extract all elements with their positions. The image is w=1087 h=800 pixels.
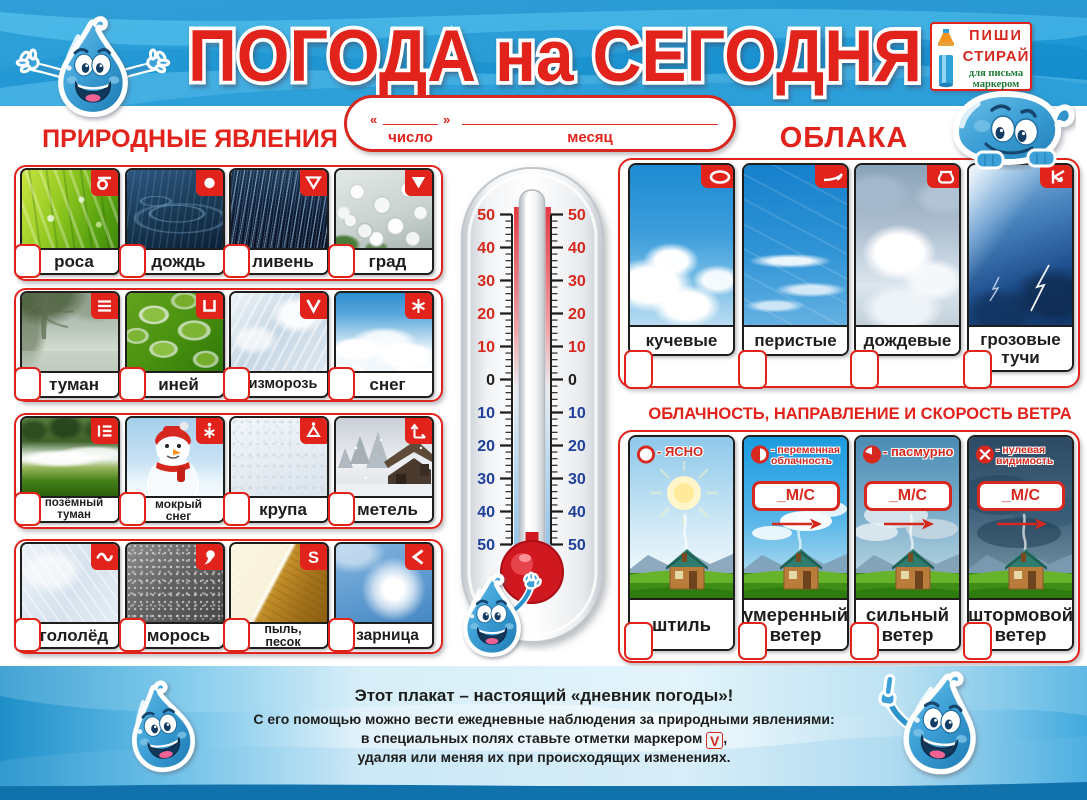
svg-text:40: 40	[568, 240, 586, 257]
svg-text:30: 30	[568, 471, 586, 488]
svg-text:10: 10	[568, 339, 586, 356]
svg-text:10: 10	[568, 405, 586, 422]
svg-text:40: 40	[477, 240, 495, 257]
svg-text:0: 0	[568, 372, 577, 389]
svg-text:S: S	[308, 549, 319, 567]
svg-text:20: 20	[568, 306, 586, 323]
svg-text:40: 40	[477, 504, 495, 521]
svg-text:20: 20	[568, 438, 586, 455]
svg-text:50: 50	[568, 537, 586, 554]
svg-text:30: 30	[477, 471, 495, 488]
svg-text:20: 20	[477, 438, 495, 455]
svg-text:30: 30	[568, 273, 586, 290]
svg-text:30: 30	[477, 273, 495, 290]
svg-text:10: 10	[477, 405, 495, 422]
svg-text:50: 50	[477, 207, 495, 224]
svg-text:10: 10	[477, 339, 495, 356]
svg-text:40: 40	[568, 504, 586, 521]
svg-text:ПОГОДА на СЕГОДНЯ: ПОГОДА на СЕГОДНЯ	[188, 16, 922, 97]
svg-text:0: 0	[486, 372, 495, 389]
svg-text:20: 20	[477, 306, 495, 323]
svg-text:50: 50	[568, 207, 586, 224]
svg-text:50: 50	[477, 537, 495, 554]
